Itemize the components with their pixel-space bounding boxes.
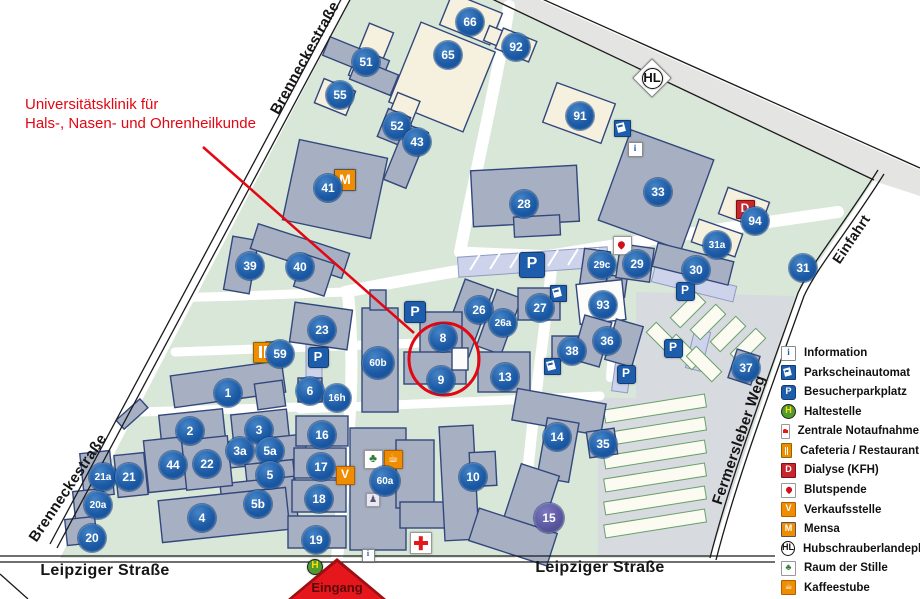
notaufnahme-icon [781,424,790,439]
legend-item-kaffeestube: ☕Kaffeestube [781,580,919,596]
kaffeestube-icon: ☕ [781,580,796,595]
legend-label: Zentrale Notaufnahme [798,425,919,437]
legend-label: Haltestelle [804,406,862,418]
legend-item-notaufnahme: Zentrale Notaufnahme [781,423,919,439]
legend-label: Kaffeestube [804,582,870,594]
legend-label: Parkscheinautomat [804,367,910,379]
legend-item-blutspende: Blutspende [781,482,919,498]
legend-label: Mensa [804,523,840,535]
legend-item-information: iInformation [781,345,919,361]
cafeteria-icon [781,443,792,458]
haltestelle-icon: H [781,404,796,419]
verkaufsstelle-icon: V [781,502,796,517]
legend-item-haltestelle: HHaltestelle [781,404,919,420]
legend-label: Raum der Stille [804,562,888,574]
legend-label: Dialyse (KFH) [804,464,879,476]
legend: iInformationParkscheinautomatPBesucherpa… [781,345,919,596]
legend-item-parkscheinautomat: Parkscheinautomat [781,365,919,381]
campus-map: MHLiDPPPPPPV♣☕♟Hi 6692516555915243412833… [0,0,920,599]
parkscheinautomat-icon [781,365,796,380]
legend-label: Hubschrauberlandeplatz [803,543,920,555]
annotation-line-1: Universitätsklinik für [25,96,256,115]
legend-item-cafeteria: Cafeteria / Restaurant [781,443,919,459]
legend-item-raum-der-stille: ♣Raum der Stille [781,560,919,576]
blutspende-icon [781,483,796,498]
annotation-line-2: Hals-, Nasen- und Ohrenheilkunde [25,115,256,134]
annotation: Universitätsklinik für Hals-, Nasen- und… [25,96,256,134]
information-icon: i [781,346,796,361]
legend-item-verkaufsstelle: VVerkaufsstelle [781,502,919,518]
legend-label: Verkaufsstelle [804,504,881,516]
legend-label: Blutspende [804,484,867,496]
legend-label: Besucherparkplatz [804,386,907,398]
hubschrauberlandeplatz-icon: HL [781,541,795,556]
entrance-marker: Eingang [288,558,386,599]
legend-label: Information [804,347,867,359]
legend-label: Cafeteria / Restaurant [800,445,919,457]
besucherparkplatz-icon: P [781,385,796,400]
legend-item-hubschrauberlandeplatz: HLHubschrauberlandeplatz [781,541,919,557]
raum-der-stille-icon: ♣ [781,561,796,576]
legend-item-mensa: MMensa [781,521,919,537]
mensa-icon: M [781,522,796,537]
legend-item-besucherparkplatz: PBesucherparkplatz [781,384,919,400]
dialyse-icon: D [781,463,796,478]
entrance-label: Eingang [288,580,386,595]
legend-item-dialyse: DDialyse (KFH) [781,462,919,478]
